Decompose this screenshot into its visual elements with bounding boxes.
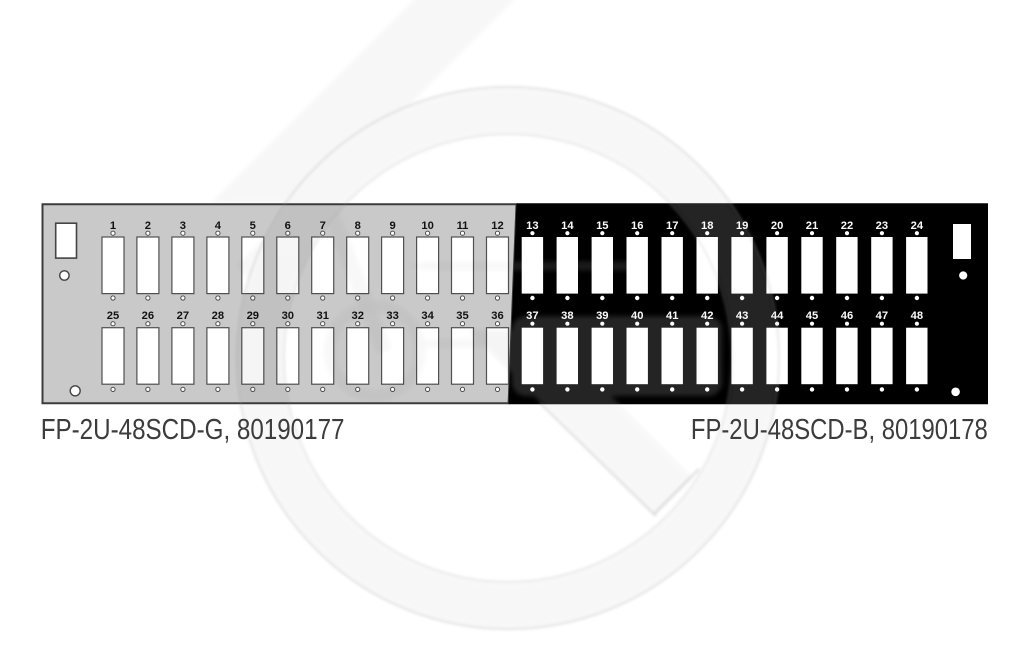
svg-text:36: 36 bbox=[491, 310, 503, 322]
svg-text:17: 17 bbox=[666, 220, 678, 232]
svg-text:24: 24 bbox=[911, 220, 924, 232]
svg-text:25: 25 bbox=[107, 310, 119, 322]
svg-text:FP-2U-48SCD-G, 80190177: FP-2U-48SCD-G, 80190177 bbox=[41, 414, 345, 446]
svg-text:35: 35 bbox=[456, 310, 468, 322]
svg-text:23: 23 bbox=[876, 220, 888, 232]
svg-text:10: 10 bbox=[421, 220, 433, 232]
svg-text:45: 45 bbox=[806, 310, 818, 322]
svg-text:34: 34 bbox=[421, 310, 434, 322]
svg-text:4: 4 bbox=[215, 220, 222, 232]
svg-text:28: 28 bbox=[212, 310, 224, 322]
svg-text:13: 13 bbox=[526, 220, 538, 232]
svg-text:48: 48 bbox=[911, 310, 923, 322]
svg-text:20: 20 bbox=[771, 220, 783, 232]
svg-text:27: 27 bbox=[177, 310, 189, 322]
svg-text:2: 2 bbox=[145, 220, 151, 232]
svg-text:3: 3 bbox=[180, 220, 186, 232]
svg-text:15: 15 bbox=[596, 220, 608, 232]
svg-text:46: 46 bbox=[841, 310, 853, 322]
svg-text:FP-2U-48SCD-B, 80190178: FP-2U-48SCD-B, 80190178 bbox=[691, 414, 988, 446]
svg-text:14: 14 bbox=[561, 220, 574, 232]
svg-text:31: 31 bbox=[316, 310, 328, 322]
svg-text:1: 1 bbox=[110, 220, 116, 232]
svg-text:47: 47 bbox=[876, 310, 888, 322]
svg-text:21: 21 bbox=[806, 220, 818, 232]
svg-text:8: 8 bbox=[355, 220, 361, 232]
svg-text:26: 26 bbox=[142, 310, 154, 322]
svg-text:9: 9 bbox=[389, 220, 395, 232]
svg-text:22: 22 bbox=[841, 220, 853, 232]
svg-text:5: 5 bbox=[250, 220, 256, 232]
svg-text:12: 12 bbox=[491, 220, 503, 232]
svg-text:16: 16 bbox=[631, 220, 643, 232]
svg-text:11: 11 bbox=[457, 220, 469, 232]
